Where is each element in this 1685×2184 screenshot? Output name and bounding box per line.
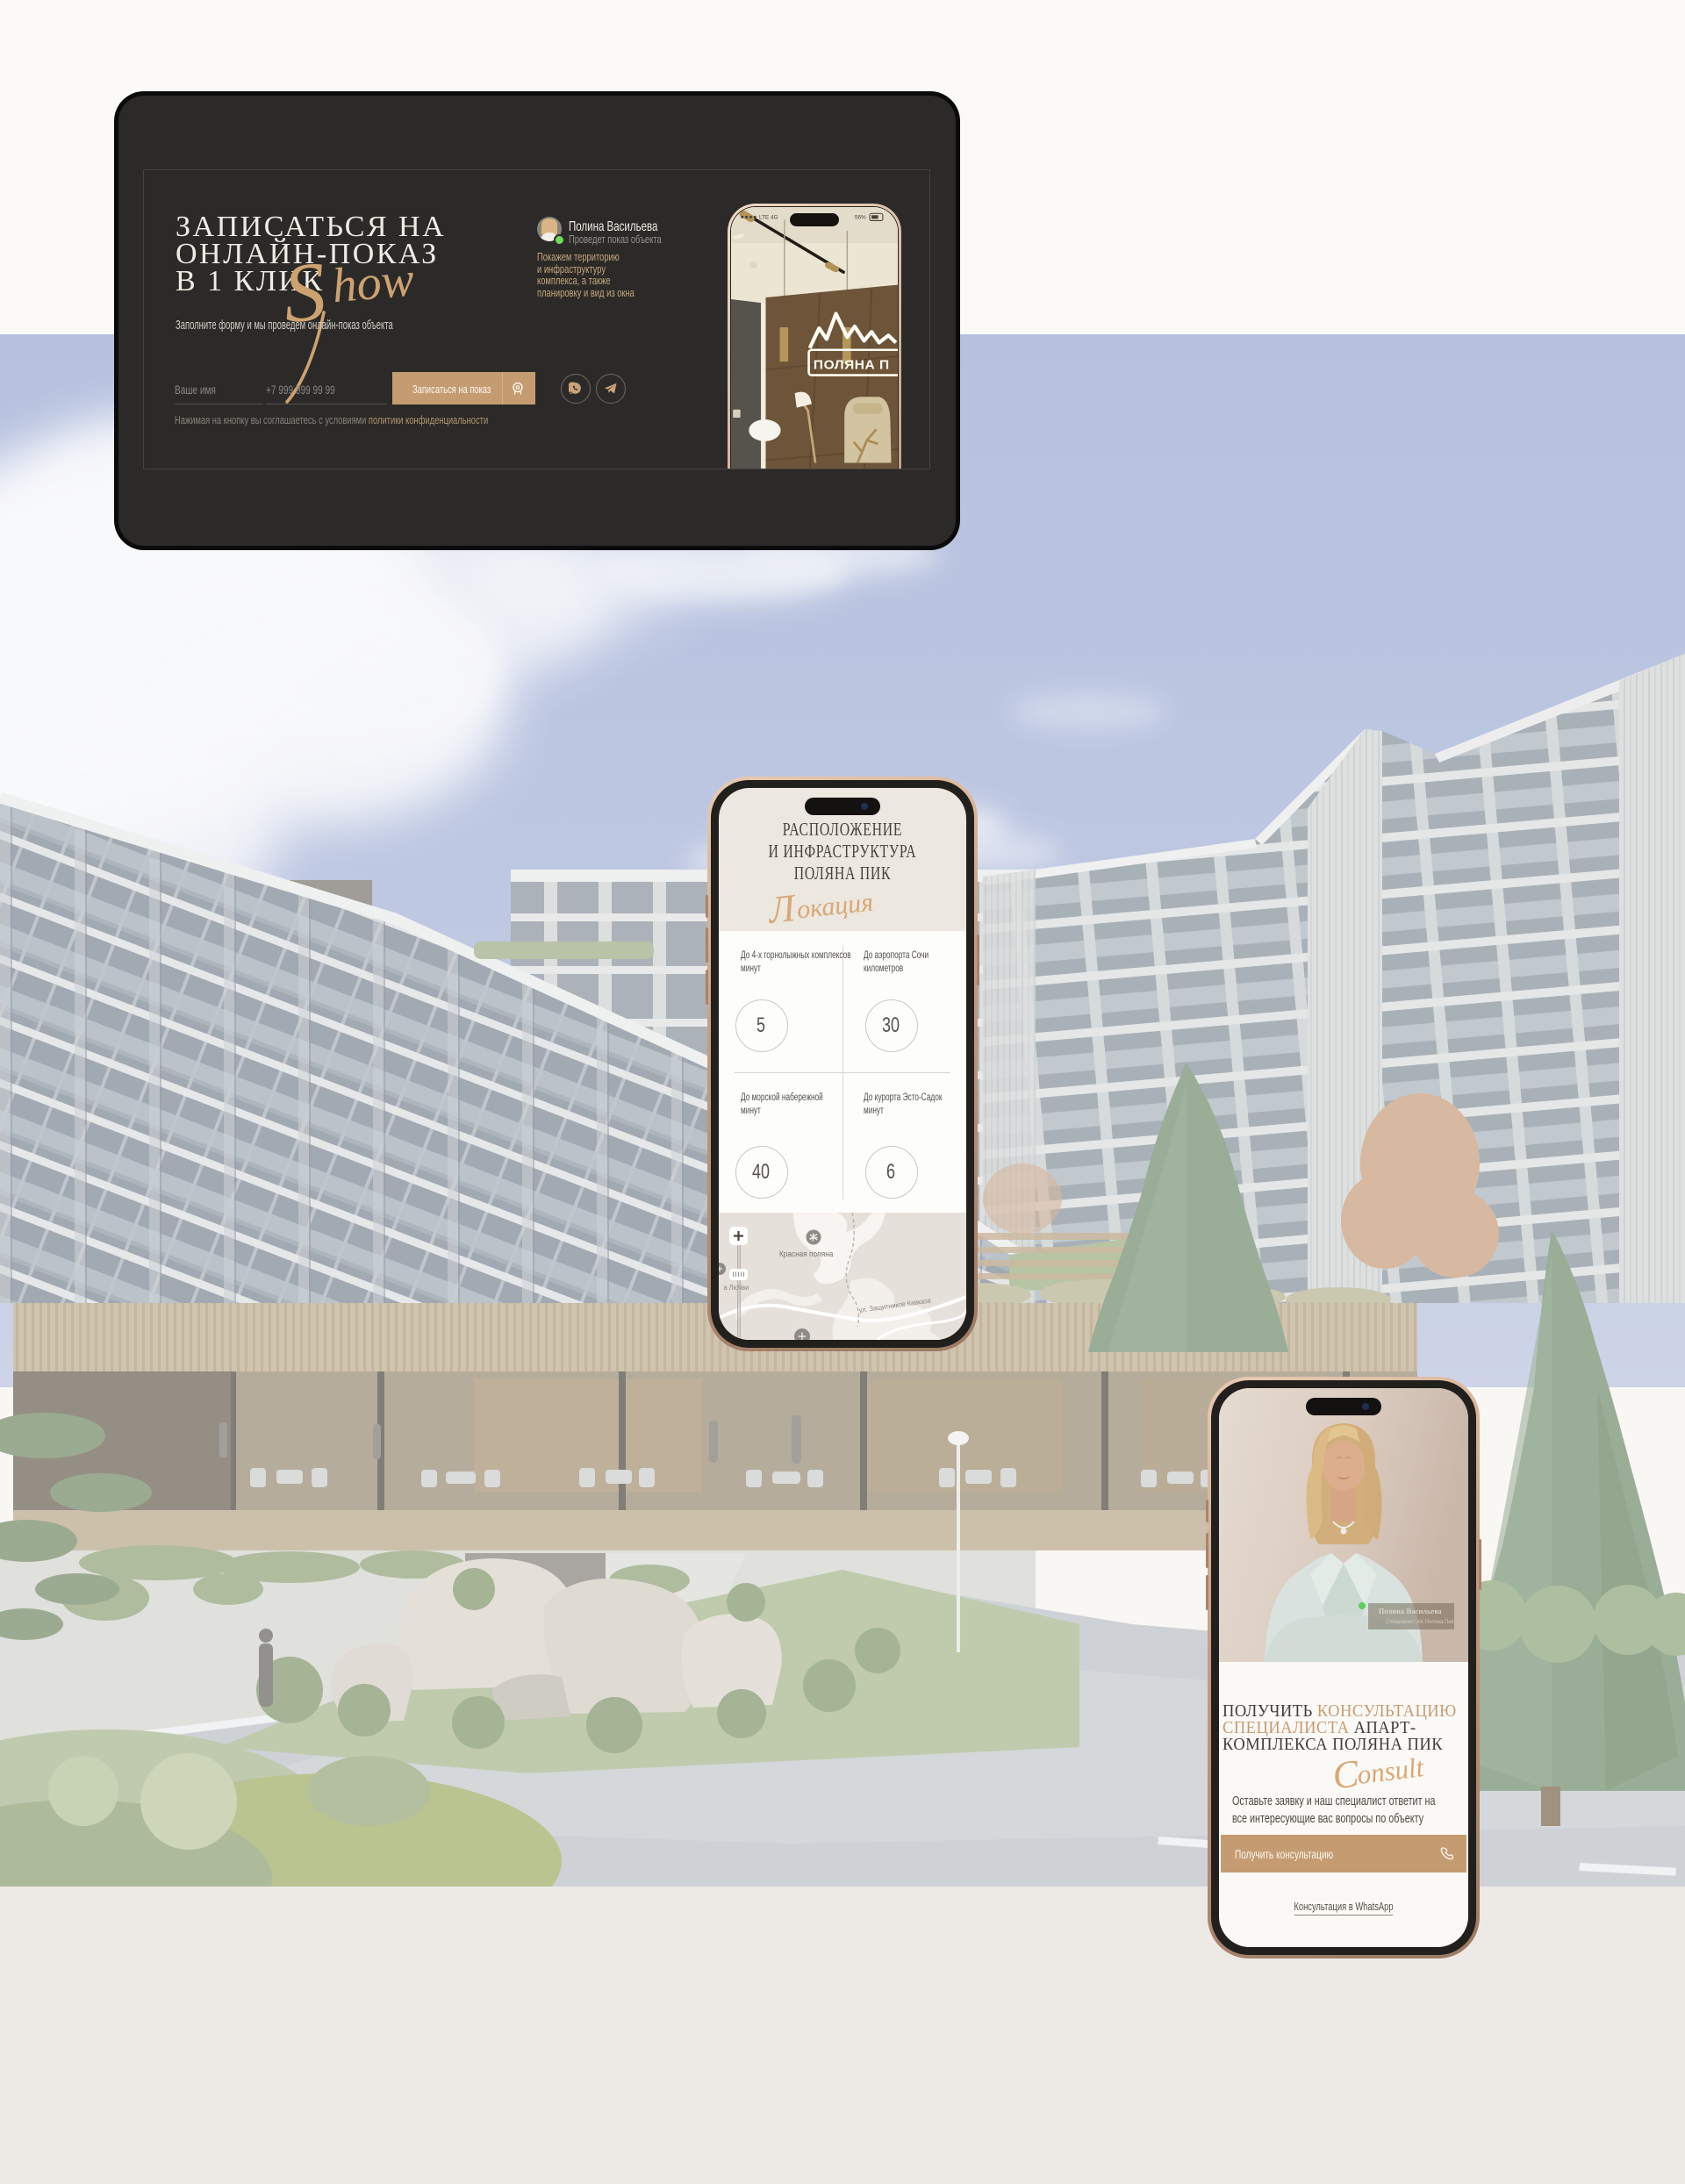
svg-text:Красная поляна: Красная поляна	[779, 1250, 834, 1258]
svg-text:Полина Васильева: Полина Васильева	[1379, 1607, 1442, 1615]
svg-text:Специалист АК Поляна Пик: Специалист АК Поляна Пик	[1386, 1620, 1454, 1625]
svg-text:окация: окация	[795, 888, 874, 925]
svg-text:Л: Л	[767, 886, 799, 932]
svg-text:ПОЛЯНА П: ПОЛЯНА П	[814, 358, 890, 373]
svg-text:а Любви: а Любви	[724, 1284, 749, 1292]
svg-text:LTE 4G: LTE 4G	[759, 214, 778, 220]
svg-text:56%: 56%	[855, 214, 866, 220]
svg-text:how: how	[330, 252, 416, 313]
svg-text:onsult: onsult	[1356, 1751, 1427, 1790]
